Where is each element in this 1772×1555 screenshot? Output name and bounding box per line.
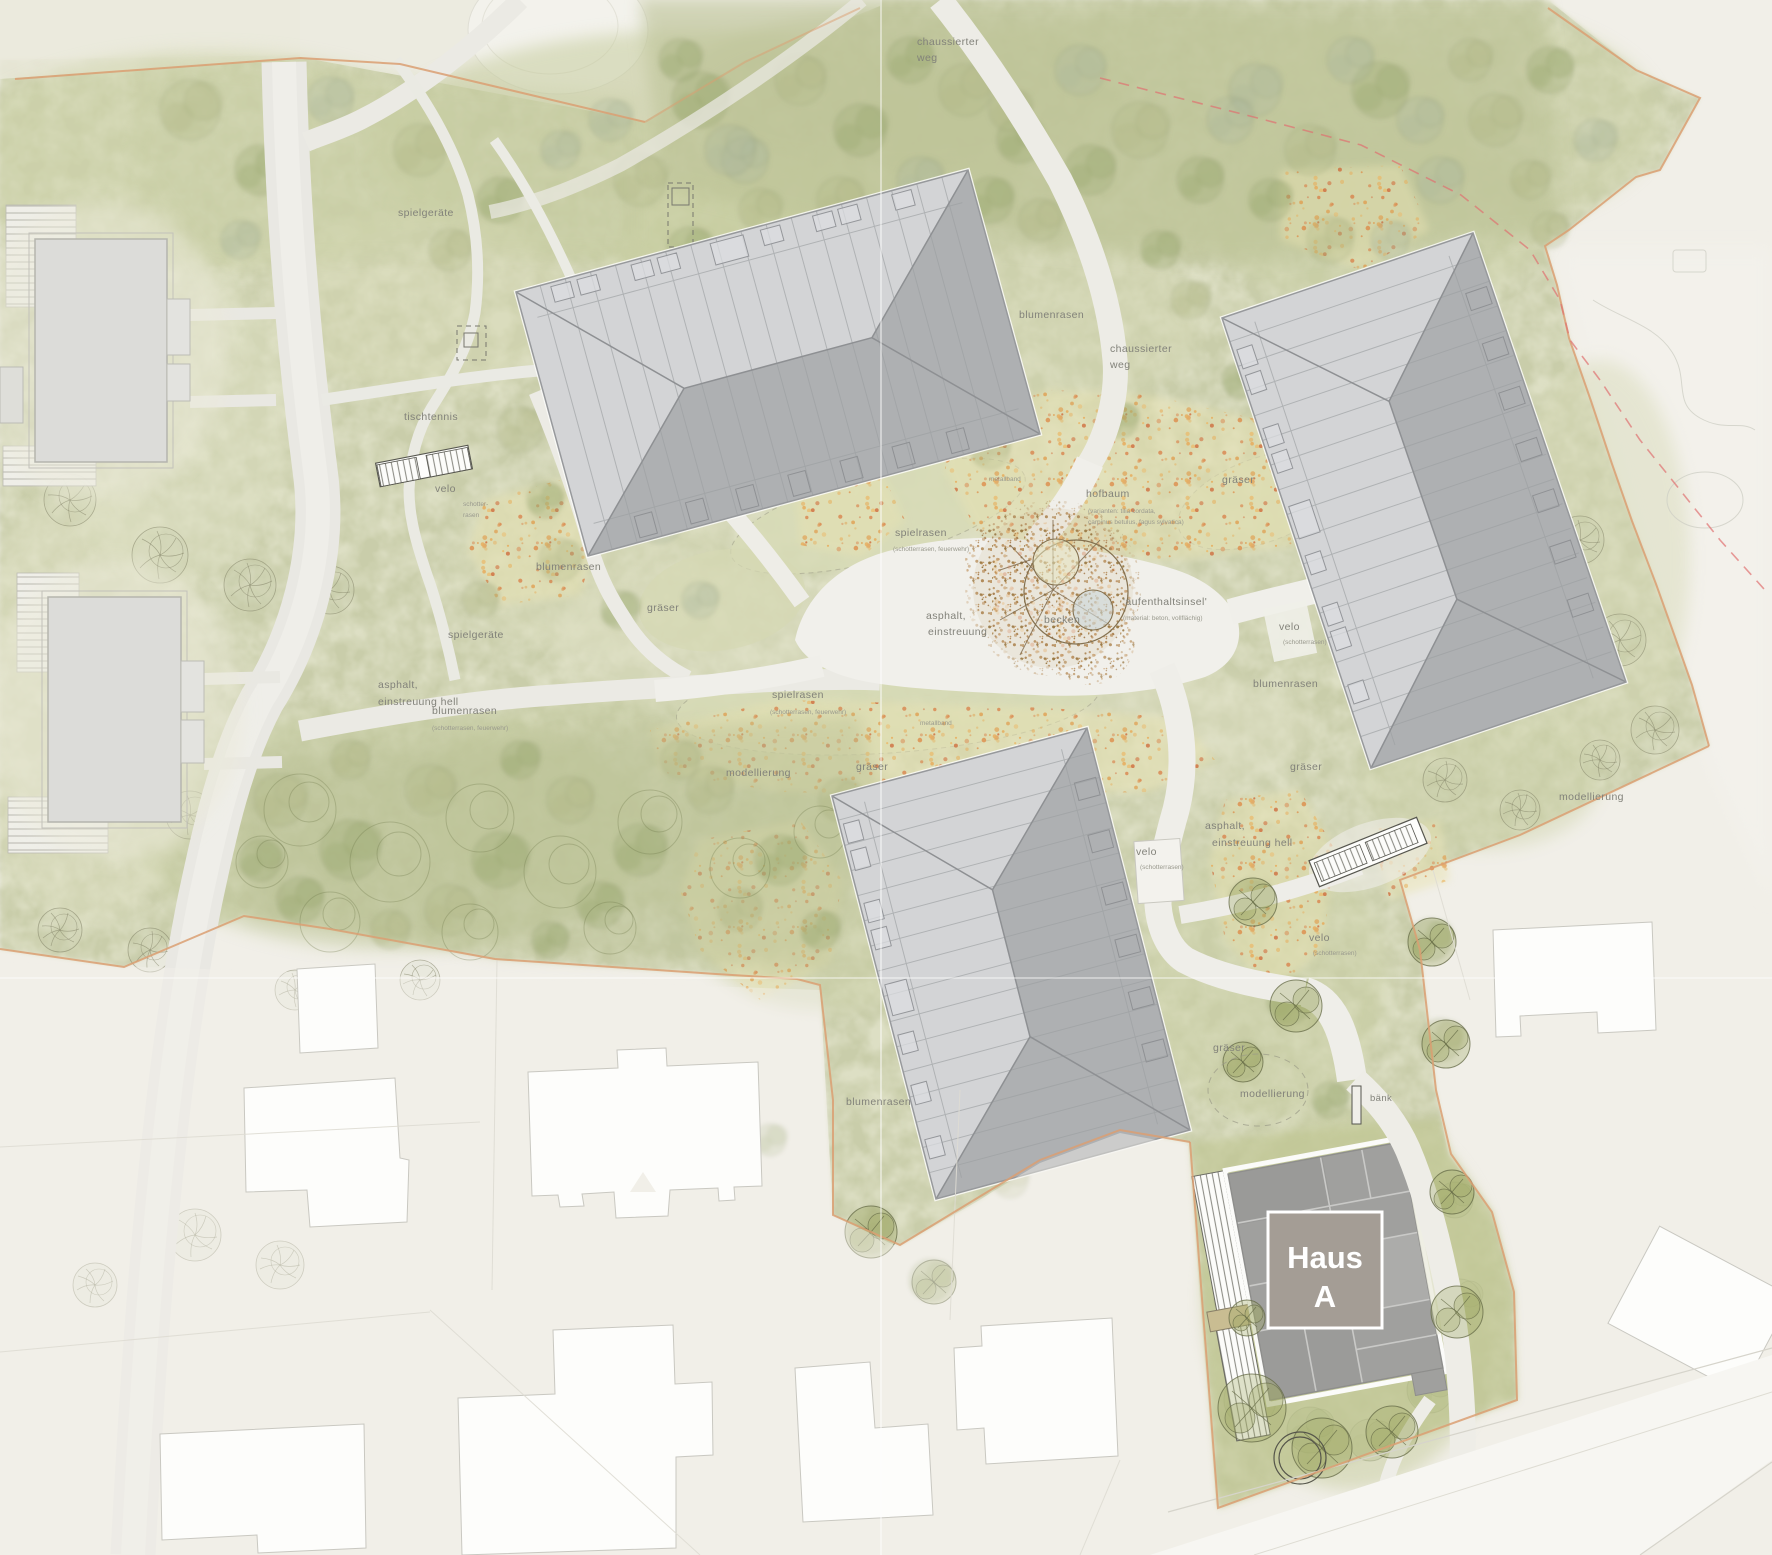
svg-text:gräser: gräser bbox=[856, 761, 888, 773]
svg-text:Haus: Haus bbox=[1287, 1240, 1363, 1275]
svg-text:weg: weg bbox=[1109, 359, 1130, 371]
svg-text:spielrasen: spielrasen bbox=[895, 527, 947, 539]
svg-text:gräser: gräser bbox=[1290, 761, 1322, 773]
svg-text:velo: velo bbox=[1136, 846, 1157, 858]
svg-text:schotter-: schotter- bbox=[463, 501, 488, 508]
svg-text:(schotterrasen): (schotterrasen) bbox=[1140, 864, 1184, 871]
svg-text:A: A bbox=[1314, 1279, 1336, 1314]
svg-text:einstreuung: einstreuung bbox=[928, 626, 987, 638]
svg-text:asphalt,: asphalt, bbox=[1205, 820, 1245, 832]
svg-text:chaussierter: chaussierter bbox=[1110, 343, 1172, 355]
svg-text:becken: becken bbox=[1044, 614, 1080, 626]
svg-text:(schotterrasen, feuerwehr): (schotterrasen, feuerwehr) bbox=[432, 725, 508, 732]
svg-text:'aufenthaltsinsel': 'aufenthaltsinsel' bbox=[1123, 596, 1207, 608]
svg-text:modellierung: modellierung bbox=[726, 767, 791, 779]
svg-text:velo: velo bbox=[1279, 621, 1300, 633]
svg-text:carpinus betulus, fagus sylvat: carpinus betulus, fagus sylvatica) bbox=[1088, 519, 1184, 526]
svg-text:asphalt,: asphalt, bbox=[378, 679, 418, 691]
svg-text:gräser: gräser bbox=[647, 602, 679, 614]
svg-text:blumenrasen: blumenrasen bbox=[1253, 678, 1318, 690]
svg-text:(varianten: tilia cordata,: (varianten: tilia cordata, bbox=[1088, 508, 1156, 515]
svg-text:gräser: gräser bbox=[1213, 1042, 1245, 1054]
svg-text:blumenrasen: blumenrasen bbox=[432, 705, 497, 717]
svg-text:einstreuung hell: einstreuung hell bbox=[1212, 837, 1293, 849]
svg-text:bänk: bänk bbox=[1370, 1093, 1392, 1104]
svg-text:modellierung: modellierung bbox=[1240, 1088, 1305, 1100]
svg-text:asphalt,: asphalt, bbox=[926, 610, 966, 622]
svg-text:velo: velo bbox=[435, 483, 456, 495]
svg-text:(schotterrasen): (schotterrasen) bbox=[1283, 639, 1327, 646]
svg-text:blumenrasen: blumenrasen bbox=[1019, 309, 1084, 321]
svg-text:spielrasen: spielrasen bbox=[772, 689, 824, 701]
svg-text:spielgeräte: spielgeräte bbox=[398, 207, 454, 219]
svg-text:rasen: rasen bbox=[463, 512, 480, 519]
svg-text:blumenrasen: blumenrasen bbox=[846, 1096, 911, 1108]
svg-text:metallband: metallband bbox=[989, 476, 1021, 483]
svg-text:(schotterrasen, feuerwehr): (schotterrasen, feuerwehr) bbox=[770, 709, 846, 716]
svg-text:modellierung: modellierung bbox=[1559, 791, 1624, 803]
svg-text:weg: weg bbox=[916, 52, 937, 64]
svg-text:(schotterrasen): (schotterrasen) bbox=[1313, 950, 1357, 957]
svg-text:metallband: metallband bbox=[920, 720, 952, 727]
svg-text:tischtennis: tischtennis bbox=[404, 411, 458, 423]
svg-text:chaussierter: chaussierter bbox=[917, 36, 979, 48]
svg-text:velo: velo bbox=[1309, 932, 1330, 944]
svg-text:hofbaum: hofbaum bbox=[1086, 488, 1130, 500]
svg-text:blumenrasen: blumenrasen bbox=[536, 561, 601, 573]
svg-text:gräser: gräser bbox=[1222, 474, 1254, 486]
svg-text:(material: beton, vollflächig): (material: beton, vollflächig) bbox=[1123, 615, 1202, 622]
svg-text:(schotterrasen, feuerwehr): (schotterrasen, feuerwehr) bbox=[893, 546, 969, 553]
svg-text:spielgeräte: spielgeräte bbox=[448, 629, 504, 641]
